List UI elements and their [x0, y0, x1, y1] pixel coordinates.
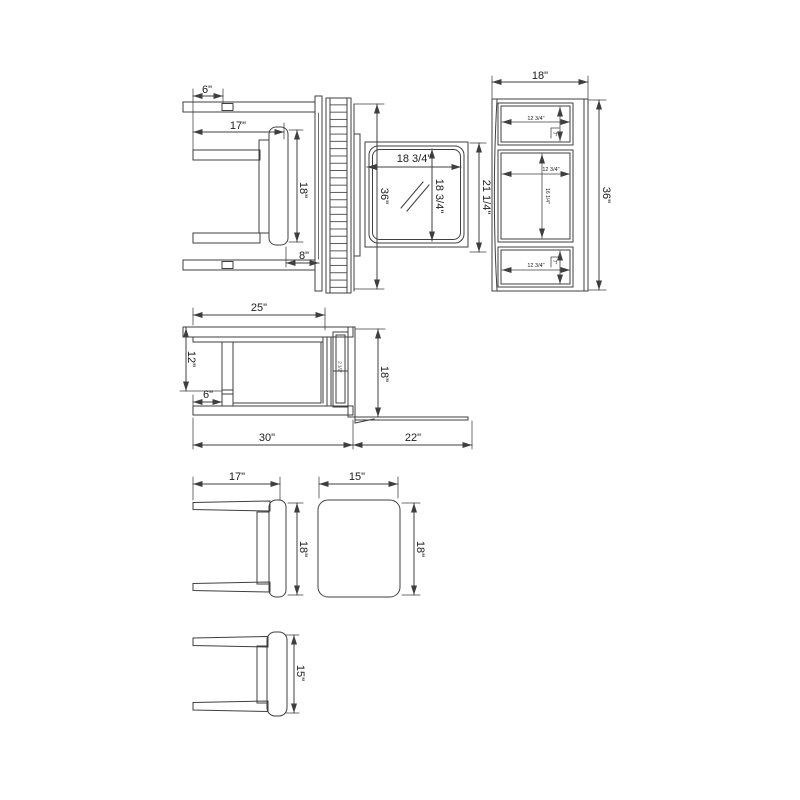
technical-drawing-sheet: 6" 17" 18" 8" 36" 18 3/4" 18 3/4" 21 1/4…: [0, 0, 800, 800]
dim-hutch-top-opening-height: 7": [551, 132, 557, 137]
dim-desk-base: 30": [259, 432, 275, 444]
dimension-labels: 6" 17" 18" 8" 36" 18 3/4" 18 3/4" 21 1/4…: [185, 70, 612, 681]
dim-stool-front-height: 15": [294, 665, 306, 681]
dim-desk-leg-height: 12": [185, 351, 197, 367]
dim-hutch-bottom-opening-height: 7": [551, 260, 557, 265]
glass-hatch-mark: [407, 185, 429, 211]
dim-hutch-bottom-opening-width: 12 3/4": [527, 263, 544, 269]
dimension-drawing: 6" 17" 18" 8" 36" 18 3/4" 18 3/4" 21 1/4…: [0, 0, 800, 800]
glass-hatch-mark: [401, 182, 423, 208]
dim-stool-side-height: 18": [297, 541, 309, 557]
dim-hutch-middle-opening-height: 16 1/4": [544, 188, 550, 204]
dim-hutch-middle-opening-width: 12 3/4": [542, 167, 559, 173]
dim-hutch-height: 36": [600, 187, 612, 203]
dim-desk-top-width: 25": [251, 302, 267, 314]
stool-front-view: [193, 632, 299, 716]
dim-mirror-overall-height: 21 1/4": [480, 180, 492, 215]
dim-stool-plan-width: 17": [230, 120, 246, 132]
dim-hutch-width: 18": [532, 70, 548, 82]
dim-cushion-width: 15": [349, 471, 365, 483]
dim-desk-leg-inset: 6": [203, 389, 213, 401]
dim-stool-plan-seat-offset: 8": [299, 250, 309, 262]
hutch-view: [492, 76, 606, 291]
stool-side-view: [193, 477, 303, 597]
dim-panel-length: 36": [378, 188, 390, 204]
dim-stool-plan-leg-inset: 6": [202, 84, 212, 96]
dim-hutch-top-opening-width: 12 3/4": [527, 116, 544, 122]
cushion-view: [318, 477, 420, 597]
dim-desk-rail: 2 1/2": [338, 361, 343, 373]
dim-desk-extension: 22": [405, 432, 421, 444]
slatted-panel: [326, 98, 384, 293]
dim-mirror-glass-width: 18 3/4": [397, 153, 432, 165]
dim-stool-side-width: 17": [229, 471, 245, 483]
dim-mirror-glass-height: 18 3/4": [433, 179, 445, 214]
desk-side-view: [180, 308, 472, 449]
dim-stool-plan-seat-depth: 18": [297, 182, 309, 198]
dim-desk-depth: 18": [378, 366, 390, 382]
dim-cushion-height: 18": [414, 541, 426, 557]
